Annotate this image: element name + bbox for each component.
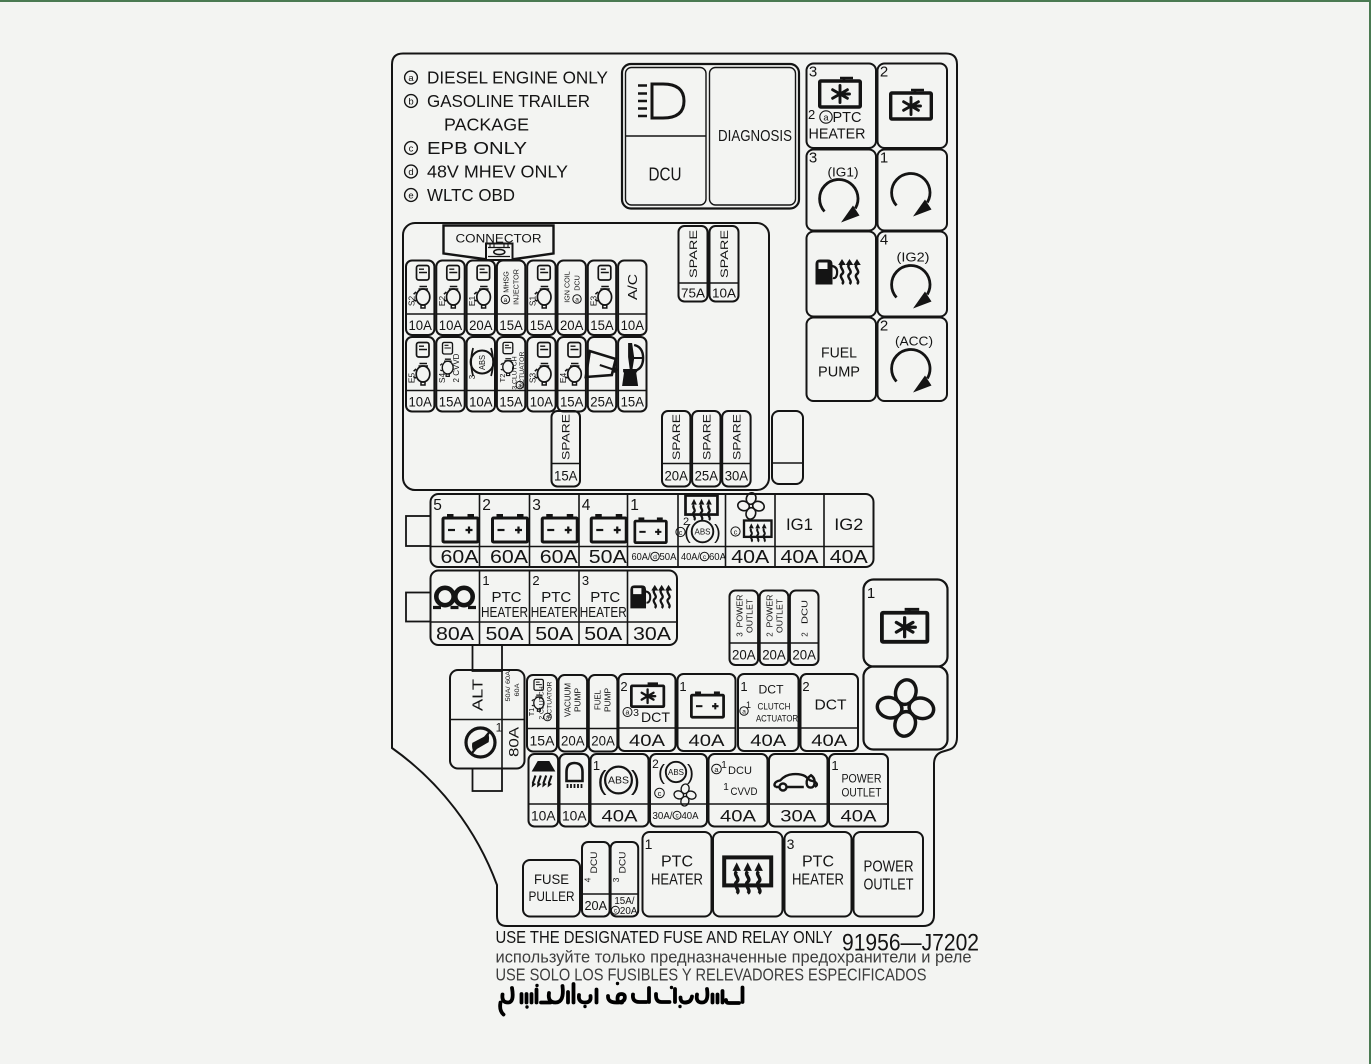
svg-text:c: c — [679, 528, 683, 537]
svg-text:MHSG: MHSG — [502, 271, 511, 293]
svg-text:40A: 40A — [731, 546, 770, 567]
svg-text:HEATER: HEATER — [481, 605, 528, 621]
svg-text:20A: 20A — [792, 647, 816, 662]
svg-text:DIESEL ENGINE ONLY: DIESEL ENGINE ONLY — [427, 68, 608, 88]
svg-text:DCU: DCU — [573, 275, 582, 291]
svg-text:T1: T1 — [529, 708, 536, 716]
svg-text:1: 1 — [740, 679, 747, 694]
svg-text:S2: S2 — [407, 296, 417, 307]
svg-text:3: 3 — [809, 149, 817, 166]
svg-text:40A: 40A — [602, 808, 638, 826]
svg-text:80A: 80A — [436, 623, 475, 644]
svg-text:1: 1 — [746, 700, 751, 710]
svg-text:DCT: DCT — [815, 696, 847, 713]
svg-text:15A: 15A — [530, 733, 555, 748]
svg-text:3: 3 — [582, 573, 589, 588]
svg-text:20A: 20A — [620, 906, 638, 917]
svg-text:): ) — [687, 762, 694, 785]
svg-text:3: 3 — [735, 632, 744, 637]
svg-text:50A: 50A — [535, 623, 574, 644]
svg-text:GASOLINE TRAILER: GASOLINE TRAILER — [427, 91, 590, 111]
svg-text:40A: 40A — [682, 811, 699, 822]
svg-text:DCT: DCT — [759, 682, 785, 696]
svg-text:PTC: PTC — [661, 854, 693, 871]
svg-text:FUEL: FUEL — [593, 690, 603, 710]
svg-text:4: 4 — [582, 497, 591, 514]
svg-text:50A/: 50A/ — [505, 686, 512, 701]
svg-text:10A: 10A — [562, 809, 587, 824]
svg-text:E1: E1 — [467, 296, 477, 307]
svg-text:USE SOLO LOS FUSIBLES Y RELEVA: USE SOLO LOS FUSIBLES Y RELEVADORES ESPE… — [496, 965, 927, 985]
svg-text:20A: 20A — [560, 318, 583, 333]
svg-text:HEATER: HEATER — [580, 605, 627, 621]
svg-text:SPARE: SPARE — [701, 414, 713, 460]
svg-text:a: a — [504, 297, 508, 304]
svg-text:15A: 15A — [499, 318, 522, 333]
svg-text:40A: 40A — [830, 546, 869, 567]
svg-text:10A: 10A — [621, 318, 644, 333]
svg-text:10A: 10A — [531, 809, 556, 824]
svg-text:(ACC): (ACC) — [895, 334, 933, 349]
svg-text:PTC: PTC — [492, 590, 522, 606]
svg-text:40A: 40A — [841, 808, 877, 826]
svg-text:60A: 60A — [514, 683, 521, 697]
svg-text:DCU: DCU — [649, 165, 682, 185]
svg-text:b: b — [408, 97, 413, 108]
svg-text:c: c — [409, 144, 414, 155]
svg-text:3: 3 — [611, 877, 621, 882]
svg-text:20A: 20A — [732, 647, 756, 662]
svg-text:50A: 50A — [660, 552, 677, 563]
svg-text:d: d — [653, 554, 657, 561]
svg-text:2: 2 — [880, 63, 888, 80]
svg-text:15A: 15A — [439, 394, 462, 409]
svg-text:d: d — [408, 167, 413, 178]
svg-text:PUMP: PUMP — [573, 688, 583, 712]
svg-text:PULLER: PULLER — [529, 889, 575, 904]
svg-text:25A: 25A — [590, 394, 613, 409]
svg-text:INJECTOR: INJECTOR — [512, 269, 521, 305]
svg-text:2 CVVD: 2 CVVD — [452, 353, 461, 382]
svg-text:POWER: POWER — [842, 771, 882, 785]
svg-text:HEATER: HEATER — [651, 872, 703, 889]
svg-text:DCU: DCU — [800, 600, 810, 624]
svg-text:POWER: POWER — [736, 594, 745, 627]
svg-text:10A: 10A — [469, 394, 492, 409]
svg-text:30A: 30A — [725, 468, 748, 483]
svg-text:): ) — [714, 522, 721, 544]
svg-text:a: a — [742, 709, 746, 716]
svg-text:HEATER: HEATER — [792, 872, 844, 889]
svg-text:20A: 20A — [591, 733, 615, 748]
svg-text:EPB ONLY: EPB ONLY — [427, 138, 527, 158]
svg-text:60A: 60A — [709, 552, 726, 563]
svg-text:(IG1): (IG1) — [828, 165, 859, 180]
svg-text:3: 3 — [809, 63, 817, 80]
svg-text:ABS: ABS — [478, 355, 487, 370]
svg-text:E2: E2 — [437, 296, 447, 307]
svg-text:60A: 60A — [540, 546, 579, 567]
svg-text:60A: 60A — [441, 546, 480, 567]
svg-text:40A: 40A — [781, 546, 820, 567]
svg-text:HEATER: HEATER — [531, 605, 578, 621]
svg-text:IGN COIL: IGN COIL — [563, 271, 572, 303]
svg-text:40A/: 40A/ — [681, 552, 700, 563]
svg-text:DCU: DCU — [618, 852, 628, 874]
svg-text:15A: 15A — [499, 394, 522, 409]
svg-text:ABS: ABS — [695, 527, 711, 537]
svg-text:SPARE: SPARE — [671, 414, 683, 460]
svg-text:POWER: POWER — [864, 859, 914, 876]
svg-text:3: 3 — [633, 707, 639, 719]
svg-text:60A: 60A — [505, 670, 512, 684]
svg-text:40A: 40A — [750, 732, 786, 750]
svg-text:PUMP: PUMP — [603, 688, 613, 712]
svg-text:80A: 80A — [506, 727, 521, 757]
svg-text:1: 1 — [630, 497, 639, 514]
svg-text:40A: 40A — [689, 732, 725, 750]
svg-text:10A: 10A — [530, 394, 553, 409]
svg-text:): ) — [631, 766, 640, 796]
svg-text:CVVD: CVVD — [731, 786, 758, 798]
svg-text:1: 1 — [723, 782, 729, 793]
svg-text:2: 2 — [802, 679, 809, 694]
svg-text:ABS: ABS — [608, 776, 629, 787]
svg-text:e: e — [408, 191, 413, 202]
svg-text:25A: 25A — [695, 468, 718, 483]
svg-text:HEATER: HEATER — [809, 125, 866, 142]
svg-text:FUEL: FUEL — [821, 344, 857, 361]
svg-text:FUSE: FUSE — [534, 872, 569, 887]
svg-text:5: 5 — [433, 497, 442, 514]
svg-text:1: 1 — [496, 720, 503, 734]
svg-text:1: 1 — [482, 573, 489, 588]
svg-text:10A: 10A — [712, 285, 736, 300]
svg-text:50A: 50A — [584, 623, 623, 644]
svg-text:10A: 10A — [439, 318, 462, 333]
svg-text:(: ( — [658, 762, 665, 785]
svg-text:ALT: ALT — [469, 679, 486, 711]
svg-text:DCU: DCU — [728, 765, 752, 777]
svg-text:2: 2 — [532, 573, 539, 588]
svg-text:OUTLET: OUTLET — [776, 599, 785, 633]
svg-text:2: 2 — [808, 107, 815, 122]
svg-text:15A: 15A — [560, 394, 583, 409]
svg-text:IG1: IG1 — [786, 516, 813, 534]
svg-text:DCU: DCU — [589, 852, 599, 874]
svg-text:30A: 30A — [633, 623, 672, 644]
svg-text:1: 1 — [831, 758, 838, 773]
svg-text:PTC: PTC — [833, 109, 862, 126]
svg-text:2: 2 — [620, 679, 627, 694]
svg-text:ABS: ABS — [668, 768, 684, 777]
svg-text:(: ( — [684, 522, 691, 544]
svg-text:1: 1 — [867, 585, 875, 602]
svg-text:50A: 50A — [589, 546, 628, 567]
svg-text:2: 2 — [800, 632, 809, 637]
svg-text:30A: 30A — [780, 808, 816, 826]
svg-text:OUTLET: OUTLET — [842, 785, 883, 799]
svg-text:a: a — [408, 73, 414, 84]
svg-text:15A: 15A — [530, 318, 553, 333]
svg-text:3: 3 — [532, 497, 541, 514]
svg-text:c: c — [675, 813, 678, 820]
svg-text:2: 2 — [766, 632, 775, 637]
svg-text:A/C: A/C — [626, 274, 640, 300]
svg-text:S1: S1 — [528, 296, 538, 307]
svg-text:DCT: DCT — [641, 709, 670, 725]
svg-text:4: 4 — [583, 877, 593, 882]
svg-text:2: 2 — [880, 317, 888, 334]
svg-text:15A: 15A — [554, 468, 578, 483]
svg-text:PTC: PTC — [590, 590, 620, 606]
svg-text:c: c — [703, 554, 707, 561]
svg-text:10A: 10A — [409, 394, 432, 409]
svg-text:c: c — [658, 789, 662, 798]
svg-text:15A: 15A — [590, 318, 613, 333]
svg-text:PUMP: PUMP — [818, 363, 860, 380]
svg-text:SPARE: SPARE — [719, 230, 731, 278]
svg-text:75A: 75A — [681, 285, 705, 300]
svg-text:4: 4 — [880, 231, 888, 248]
svg-text:c: c — [614, 908, 617, 915]
svg-text:20A: 20A — [762, 647, 786, 662]
svg-text:IG2: IG2 — [834, 516, 863, 534]
svg-text:E5: E5 — [407, 373, 417, 384]
svg-text:(IG2): (IG2) — [897, 250, 930, 265]
svg-text:a: a — [575, 297, 579, 304]
svg-text:3: 3 — [787, 836, 795, 852]
svg-text:1: 1 — [679, 679, 686, 694]
svg-text:E4: E4 — [558, 373, 568, 384]
svg-text:E3: E3 — [588, 296, 598, 307]
svg-text:1: 1 — [880, 149, 888, 166]
svg-text:OUTLET: OUTLET — [864, 877, 914, 894]
svg-text:ACTUATOR: ACTUATOR — [756, 713, 798, 724]
svg-text:20A: 20A — [665, 468, 688, 483]
svg-text:10A: 10A — [409, 318, 432, 333]
svg-text:40A: 40A — [720, 808, 756, 826]
svg-text:S3: S3 — [528, 373, 538, 384]
svg-text:2: 2 — [482, 497, 491, 514]
svg-text:T2: T2 — [498, 374, 507, 383]
svg-text:60A/: 60A/ — [632, 552, 651, 563]
svg-text:1: 1 — [721, 760, 727, 771]
svg-text:CLUTCH: CLUTCH — [758, 701, 791, 712]
svg-text:PACKAGE: PACKAGE — [444, 115, 529, 135]
svg-text:40A: 40A — [811, 732, 847, 750]
svg-text:VACUUM: VACUUM — [563, 683, 573, 717]
svg-text:c: c — [734, 527, 738, 536]
svg-text:50A: 50A — [486, 623, 525, 644]
svg-text:SPARE: SPARE — [561, 414, 573, 460]
svg-text:DIAGNOSIS: DIAGNOSIS — [718, 128, 792, 145]
svg-text:PTC: PTC — [541, 590, 571, 606]
svg-text:OUTLET: OUTLET — [746, 599, 755, 633]
svg-text:20A: 20A — [585, 899, 608, 913]
svg-text:a: a — [626, 710, 630, 717]
svg-text:SPARE: SPARE — [688, 230, 700, 278]
svg-text:SPARE: SPARE — [731, 414, 743, 460]
svg-text:15A: 15A — [621, 394, 644, 409]
svg-text:60A: 60A — [490, 546, 529, 567]
svg-text:20A: 20A — [561, 733, 585, 748]
svg-text:40A: 40A — [629, 732, 665, 750]
svg-text:PTC: PTC — [802, 854, 834, 871]
svg-text:30A/: 30A/ — [653, 811, 673, 822]
svg-text:48V MHEV ONLY: 48V MHEV ONLY — [427, 162, 568, 182]
svg-text:S4: S4 — [437, 373, 447, 384]
svg-text:a: a — [823, 113, 829, 123]
svg-text:POWER: POWER — [766, 594, 775, 627]
svg-text:WLTC OBD: WLTC OBD — [427, 185, 515, 205]
svg-text:20A: 20A — [469, 318, 492, 333]
svg-text:1: 1 — [645, 836, 653, 852]
svg-text:USE THE DESIGNATED FUSE AND RE: USE THE DESIGNATED FUSE AND RELAY ONLY — [496, 927, 833, 947]
